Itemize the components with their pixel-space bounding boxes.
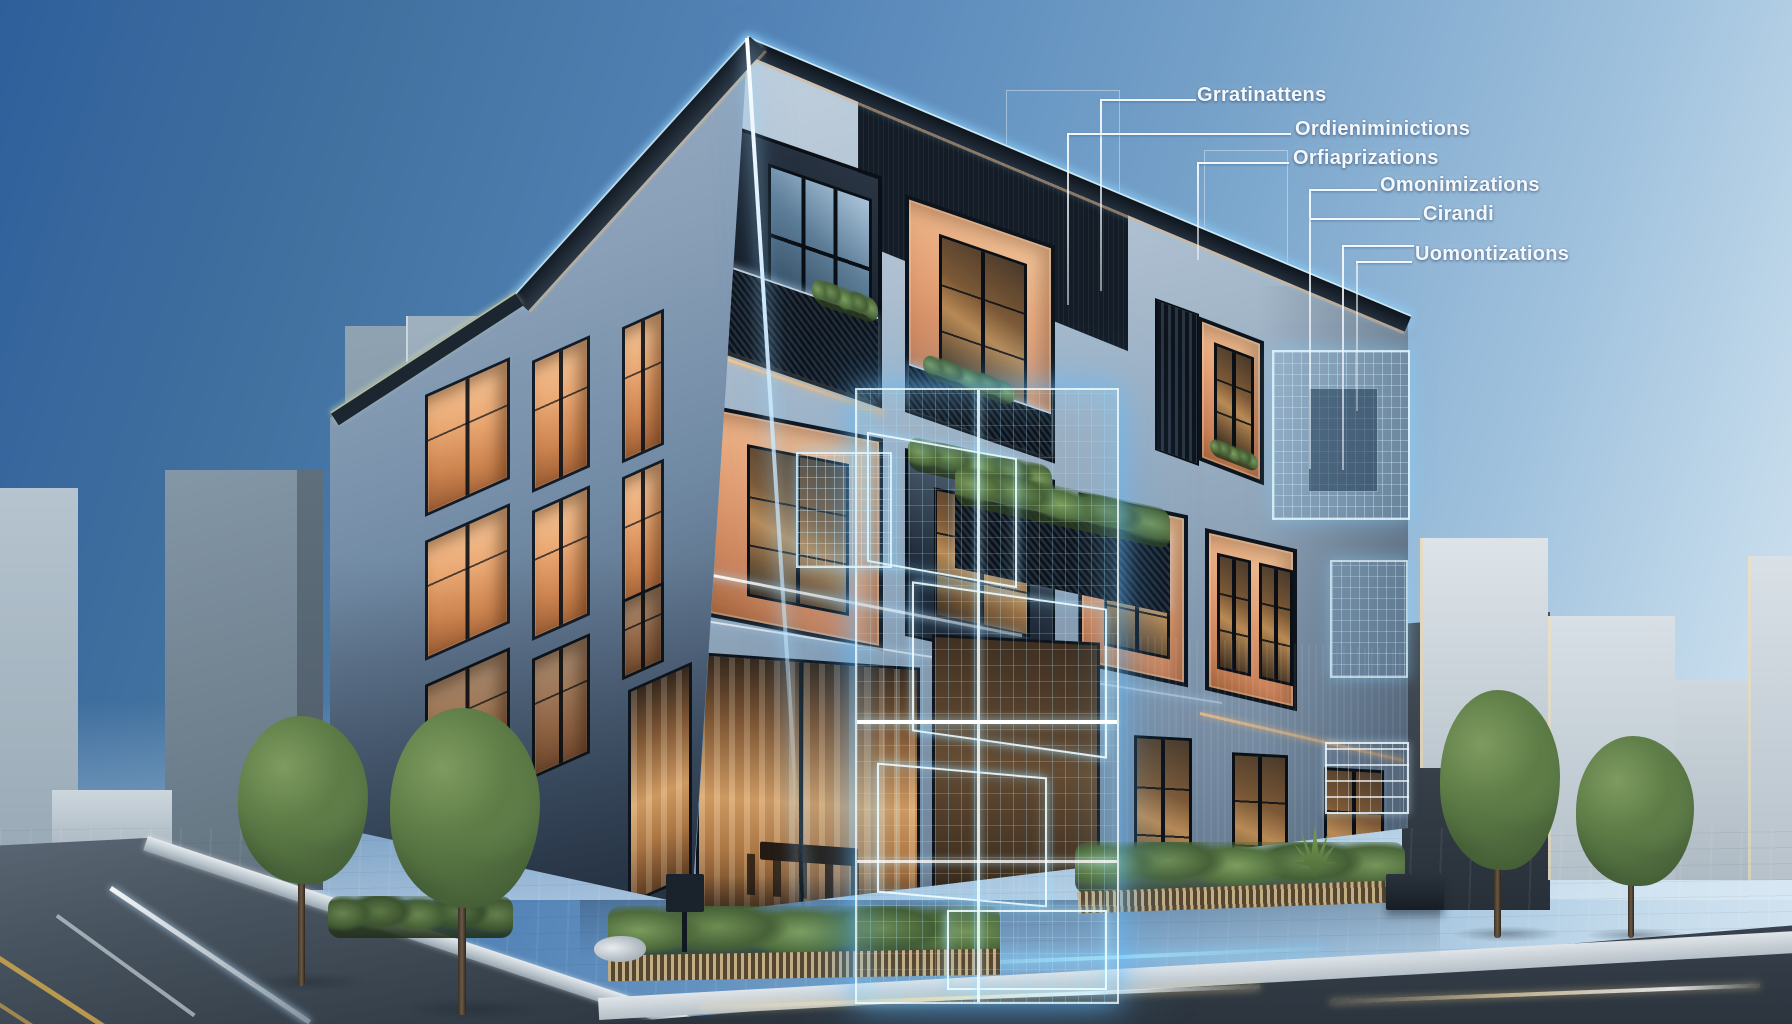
leader-line: [1197, 162, 1199, 260]
hologram-frame: [912, 581, 1107, 758]
tree-shadow: [1584, 928, 1688, 942]
ground-floor-glazing: [628, 662, 692, 905]
landscape-rock: [594, 936, 646, 962]
leader-line: [1356, 261, 1412, 263]
leader-line: [1356, 261, 1358, 411]
leader-line: [1309, 189, 1377, 191]
tree-shadow: [400, 998, 550, 1020]
tree-canopy: [1440, 690, 1560, 870]
hologram-frame: [947, 910, 1107, 990]
signpost-head: [666, 874, 704, 912]
hologram-line: [857, 860, 1117, 863]
bim-hologram-overlay: [855, 388, 1119, 1004]
annotation-label: Orfiaprizations: [1293, 147, 1439, 170]
window: [532, 485, 590, 641]
railed-balcony: [1325, 742, 1409, 814]
annotation-label: Ordieniminictions: [1295, 118, 1470, 141]
wireframe-balcony: [796, 452, 892, 568]
louver-panel: [1155, 298, 1199, 466]
wireframe-balcony-top: [1272, 350, 1410, 520]
tree-canopy: [1576, 736, 1694, 886]
leader-line: [1067, 133, 1291, 135]
tree-shadow: [1452, 926, 1562, 942]
annotation-label: Uomontizations: [1415, 243, 1569, 266]
leader-line: [1342, 245, 1344, 470]
annotation-label: Cirandi: [1423, 203, 1494, 226]
annotation-label: Grratinattens: [1197, 84, 1327, 107]
planter-box: [1386, 874, 1444, 910]
leader-line: [1310, 218, 1420, 220]
annotation-label: Omonimizations: [1380, 174, 1540, 197]
window: [425, 357, 510, 517]
leader-line: [1067, 133, 1069, 305]
window: [532, 335, 590, 493]
window-bay: [1198, 316, 1264, 485]
leader-line: [1342, 245, 1414, 247]
tree-canopy: [238, 716, 368, 884]
leader-line: [1309, 189, 1311, 469]
leader-line: [1197, 162, 1289, 164]
leader-line: [1100, 99, 1196, 101]
architectural-rendering: Grratinattens Ordieniminictions Orfiapri…: [0, 0, 1792, 1024]
hologram-frame: [877, 763, 1047, 908]
hologram-line: [857, 720, 1117, 724]
window: [622, 309, 664, 464]
wireframe-balcony: [1330, 560, 1408, 678]
leader-line: [1100, 99, 1102, 291]
tree-canopy: [390, 708, 540, 908]
hologram-line: [977, 390, 980, 1002]
tree-shadow: [250, 972, 370, 992]
signpost-pole: [682, 912, 687, 952]
